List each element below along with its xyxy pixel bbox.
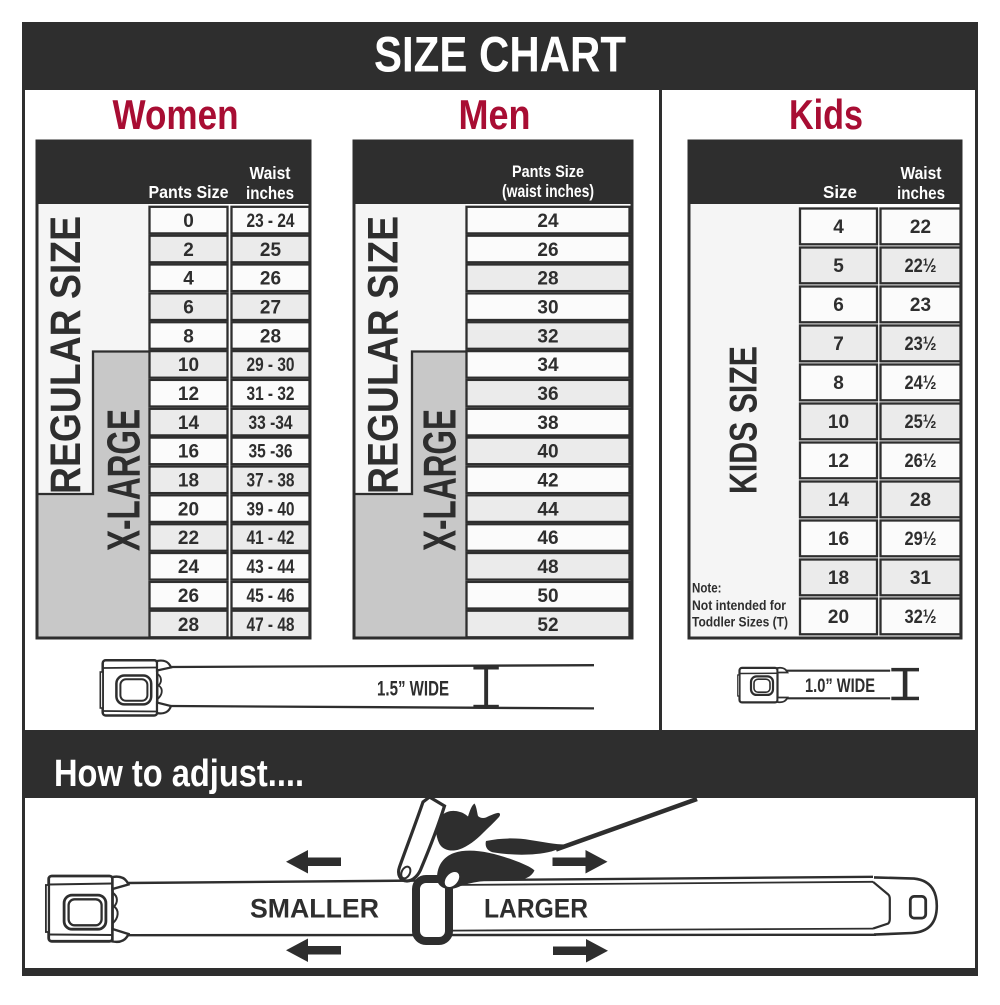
svg-text:18: 18 <box>178 471 199 492</box>
svg-text:1.0” WIDE: 1.0” WIDE <box>805 676 875 697</box>
svg-text:41 - 42: 41 - 42 <box>247 528 295 549</box>
svg-text:25½: 25½ <box>905 412 937 433</box>
svg-text:6: 6 <box>833 295 844 316</box>
svg-text:20: 20 <box>178 499 199 520</box>
svg-text:7: 7 <box>833 334 844 355</box>
svg-text:Pants Size: Pants Size <box>512 163 584 181</box>
svg-text:29 - 30: 29 - 30 <box>247 355 295 376</box>
svg-text:28: 28 <box>260 326 281 347</box>
svg-text:32: 32 <box>537 326 558 347</box>
svg-text:Kids: Kids <box>789 91 863 138</box>
svg-text:10: 10 <box>828 412 849 433</box>
svg-text:40: 40 <box>537 442 558 463</box>
svg-text:26: 26 <box>260 269 281 290</box>
svg-text:43 - 44: 43 - 44 <box>247 557 295 578</box>
svg-text:32½: 32½ <box>905 607 937 628</box>
svg-text:SMALLER: SMALLER <box>250 894 379 924</box>
svg-text:24: 24 <box>537 211 559 232</box>
svg-text:10: 10 <box>178 355 199 376</box>
svg-text:Not intended for: Not intended for <box>692 598 787 613</box>
svg-text:6: 6 <box>183 298 194 319</box>
svg-text:38: 38 <box>537 413 558 434</box>
svg-text:31 - 32: 31 - 32 <box>247 384 295 405</box>
svg-text:45 - 46: 45 - 46 <box>247 586 295 607</box>
svg-text:14: 14 <box>178 413 200 434</box>
svg-text:Note:: Note: <box>692 581 722 596</box>
svg-text:39 - 40: 39 - 40 <box>247 499 295 520</box>
svg-text:25: 25 <box>260 240 282 261</box>
svg-text:X-LARGE: X-LARGE <box>414 409 466 551</box>
svg-text:(waist inches): (waist inches) <box>502 181 594 201</box>
svg-text:24½: 24½ <box>905 373 937 394</box>
svg-text:inches: inches <box>246 183 294 203</box>
svg-text:28: 28 <box>537 269 558 290</box>
svg-text:27: 27 <box>260 298 281 319</box>
svg-text:4: 4 <box>833 217 844 238</box>
svg-text:4: 4 <box>183 269 194 290</box>
svg-text:18: 18 <box>828 568 849 589</box>
svg-text:36: 36 <box>537 384 558 405</box>
svg-text:16: 16 <box>178 442 199 463</box>
svg-text:35 -36: 35 -36 <box>249 442 293 463</box>
svg-text:0: 0 <box>183 211 194 232</box>
svg-text:5: 5 <box>833 256 844 277</box>
svg-text:28: 28 <box>910 490 931 511</box>
svg-text:12: 12 <box>178 384 199 405</box>
svg-text:REGULAR SIZE: REGULAR SIZE <box>360 216 408 494</box>
svg-text:48: 48 <box>537 557 558 578</box>
svg-text:30: 30 <box>537 298 558 319</box>
svg-text:47 - 48: 47 - 48 <box>247 615 295 636</box>
svg-text:22½: 22½ <box>905 256 937 277</box>
svg-text:50: 50 <box>537 586 558 607</box>
svg-text:29½: 29½ <box>905 529 937 550</box>
svg-text:44: 44 <box>537 499 559 520</box>
svg-text:22: 22 <box>178 528 199 549</box>
svg-text:42: 42 <box>537 471 558 492</box>
svg-text:23½: 23½ <box>905 334 937 355</box>
svg-text:REGULAR SIZE: REGULAR SIZE <box>42 216 90 494</box>
svg-text:inches: inches <box>897 183 945 203</box>
svg-text:Waist: Waist <box>901 163 942 183</box>
svg-text:16: 16 <box>828 529 849 550</box>
svg-text:X-LARGE: X-LARGE <box>97 409 149 551</box>
svg-text:34: 34 <box>537 355 559 376</box>
svg-text:How to adjust....: How to adjust.... <box>54 753 304 795</box>
svg-text:26½: 26½ <box>905 451 937 472</box>
svg-text:Men: Men <box>459 91 531 138</box>
svg-text:26: 26 <box>178 586 199 607</box>
svg-text:14: 14 <box>828 490 850 511</box>
svg-text:23 - 24: 23 - 24 <box>247 211 295 232</box>
svg-text:22: 22 <box>910 217 931 238</box>
svg-text:Size: Size <box>823 182 857 202</box>
svg-text:KIDS SIZE: KIDS SIZE <box>723 346 766 494</box>
svg-text:46: 46 <box>537 528 558 549</box>
svg-text:23: 23 <box>910 295 931 316</box>
svg-text:28: 28 <box>178 615 199 636</box>
svg-text:Waist: Waist <box>250 163 291 183</box>
svg-text:SIZE CHART: SIZE CHART <box>374 27 626 83</box>
svg-text:20: 20 <box>828 607 849 628</box>
svg-text:2: 2 <box>183 240 194 261</box>
svg-text:26: 26 <box>537 240 558 261</box>
svg-text:LARGER: LARGER <box>484 894 588 924</box>
svg-text:8: 8 <box>183 326 194 347</box>
svg-text:24: 24 <box>178 557 200 578</box>
svg-text:1.5” WIDE: 1.5” WIDE <box>377 678 449 701</box>
svg-text:52: 52 <box>537 615 558 636</box>
svg-text:Pants Size: Pants Size <box>149 182 229 202</box>
svg-text:37 - 38: 37 - 38 <box>247 471 295 492</box>
svg-text:8: 8 <box>833 373 844 394</box>
svg-text:Women: Women <box>113 91 239 138</box>
svg-text:12: 12 <box>828 451 849 472</box>
svg-text:Toddler Sizes (T): Toddler Sizes (T) <box>692 615 788 630</box>
svg-text:33 -34: 33 -34 <box>249 413 293 434</box>
svg-text:31: 31 <box>910 568 932 589</box>
